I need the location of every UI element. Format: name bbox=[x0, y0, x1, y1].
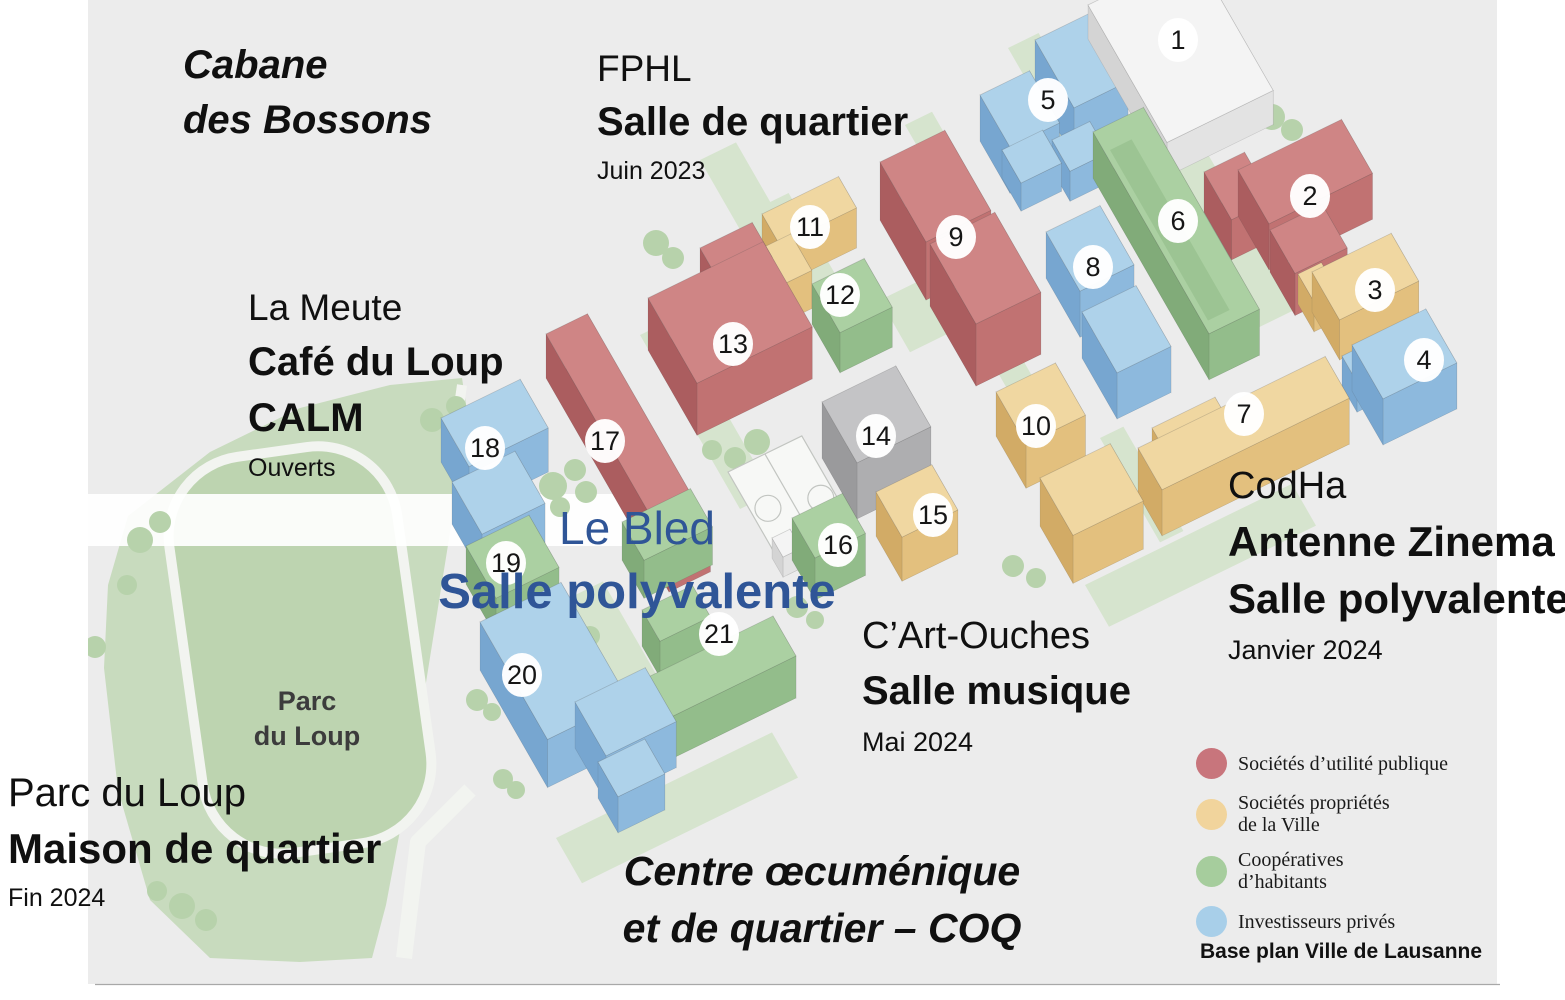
label-coq: Centre œcuménique et de quartier – COQ bbox=[623, 843, 1022, 957]
label-line: du Loup bbox=[254, 719, 360, 754]
facility: Café du Loup bbox=[248, 334, 504, 390]
label-fphl: FPHL Salle de quartier Juin 2023 bbox=[597, 44, 908, 192]
legend-label: de la Ville bbox=[1238, 814, 1390, 836]
building-number: 2 bbox=[1302, 181, 1317, 211]
legend-label: Sociétés propriétés bbox=[1238, 792, 1390, 814]
facility: Salle musique bbox=[862, 663, 1131, 719]
building-number: 13 bbox=[718, 329, 748, 359]
date: Fin 2024 bbox=[8, 877, 381, 920]
tree bbox=[702, 440, 722, 460]
label-cabane-des-bossons: Cabane des Bossons bbox=[183, 38, 432, 148]
building-number: 17 bbox=[590, 426, 620, 456]
label-line: Cabane bbox=[183, 38, 432, 93]
org-name: CodHa bbox=[1228, 460, 1565, 513]
org-name: FPHL bbox=[597, 44, 908, 94]
tree bbox=[1026, 568, 1046, 588]
label-line: Parc bbox=[254, 684, 360, 719]
legend-label: Coopératives bbox=[1238, 849, 1344, 871]
status: Ouverts bbox=[248, 446, 504, 490]
legend-swatch-tan bbox=[1196, 799, 1227, 830]
building-number: 14 bbox=[861, 421, 891, 451]
org-name: Parc du Loup bbox=[8, 766, 381, 820]
legend-item-public-utility: Sociétés d’utilité publique bbox=[1196, 748, 1448, 779]
slide: 123456789101112131415161718192021 Cabane… bbox=[0, 0, 1565, 1000]
tree bbox=[149, 511, 171, 533]
tree bbox=[1002, 555, 1024, 577]
label-le-bled: Le Bled Salle polyvalente bbox=[438, 497, 836, 625]
tree bbox=[483, 703, 501, 721]
legend: Sociétés d’utilité publique Sociétés pro… bbox=[1196, 748, 1448, 950]
facility: Salle polyvalente bbox=[438, 559, 836, 625]
date: Mai 2024 bbox=[862, 719, 1131, 766]
building-number: 20 bbox=[507, 660, 537, 690]
building-number: 15 bbox=[918, 500, 948, 530]
building-number: 9 bbox=[948, 222, 963, 252]
building-number: 1 bbox=[1170, 25, 1185, 55]
org-name: Le Bled bbox=[438, 497, 836, 559]
facility: Maison de quartier bbox=[8, 820, 381, 877]
tree bbox=[1281, 119, 1303, 141]
legend-label: d’habitants bbox=[1238, 871, 1344, 893]
building-number: 8 bbox=[1085, 252, 1100, 282]
label-line: des Bossons bbox=[183, 93, 432, 148]
park-name-label: Parc du Loup bbox=[254, 684, 360, 754]
building-number: 10 bbox=[1021, 411, 1051, 441]
date: Juin 2023 bbox=[597, 150, 908, 192]
tree bbox=[662, 247, 684, 269]
legend-swatch-blue bbox=[1196, 906, 1227, 937]
label-parc-du-loup-mq: Parc du Loup Maison de quartier Fin 2024 bbox=[8, 766, 381, 920]
label-cart-ouches: C’Art-Ouches Salle musique Mai 2024 bbox=[862, 610, 1131, 766]
legend-swatch-red bbox=[1196, 748, 1227, 779]
building-number: 5 bbox=[1040, 85, 1055, 115]
facility: Salle de quartier bbox=[597, 94, 908, 150]
building-number: 4 bbox=[1416, 345, 1431, 375]
building-number: 11 bbox=[796, 212, 824, 242]
building-number: 3 bbox=[1367, 275, 1382, 305]
facility: Antenne Zinema bbox=[1228, 513, 1565, 570]
label-codha: CodHa Antenne Zinema Salle polyvalente J… bbox=[1228, 460, 1565, 674]
building-number: 7 bbox=[1236, 399, 1251, 429]
tree bbox=[744, 429, 770, 455]
label-line: Centre œcuménique bbox=[623, 843, 1022, 900]
legend-label: Investisseurs privés bbox=[1238, 911, 1395, 933]
legend-item-city-owned: Sociétés propriétés de la Ville bbox=[1196, 792, 1448, 836]
legend-label: Sociétés d’utilité publique bbox=[1238, 753, 1448, 775]
tree bbox=[507, 781, 525, 799]
tree bbox=[539, 472, 567, 500]
label-line: et de quartier – COQ bbox=[623, 900, 1022, 957]
building-number: 6 bbox=[1170, 206, 1185, 236]
org-name: C’Art-Ouches bbox=[862, 610, 1131, 663]
base-plan-credit: Base plan Ville de Lausanne bbox=[1200, 940, 1482, 964]
legend-item-private-investors: Investisseurs privés bbox=[1196, 906, 1448, 937]
legend-item-housing-coop: Coopératives d’habitants bbox=[1196, 849, 1448, 893]
facility: CALM bbox=[248, 390, 504, 446]
date: Janvier 2024 bbox=[1228, 627, 1565, 674]
facility: Salle polyvalente bbox=[1228, 570, 1565, 627]
legend-swatch-green bbox=[1196, 856, 1227, 887]
label-la-meute: La Meute Café du Loup CALM Ouverts bbox=[248, 281, 504, 490]
building-number: 12 bbox=[825, 280, 855, 310]
tree bbox=[564, 459, 586, 481]
tree bbox=[127, 527, 153, 553]
tree bbox=[117, 575, 137, 595]
org-name: La Meute bbox=[248, 281, 504, 334]
